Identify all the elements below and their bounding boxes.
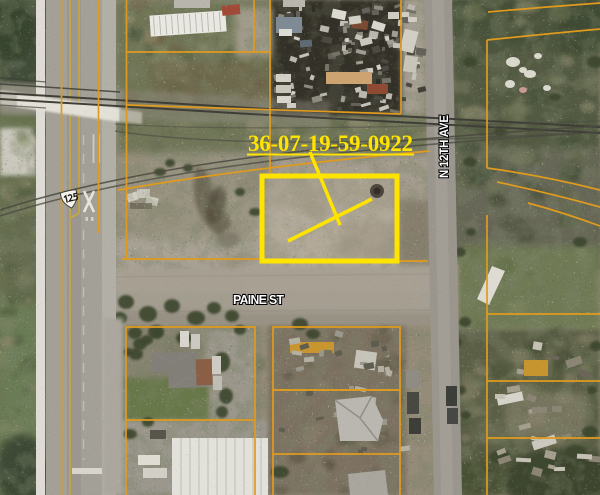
svg-text:N 12TH AVE: N 12TH AVE — [439, 115, 451, 178]
svg-text:PAINE ST: PAINE ST — [233, 293, 284, 307]
svg-text:36-07-19-59-0922: 36-07-19-59-0922 — [248, 131, 413, 156]
